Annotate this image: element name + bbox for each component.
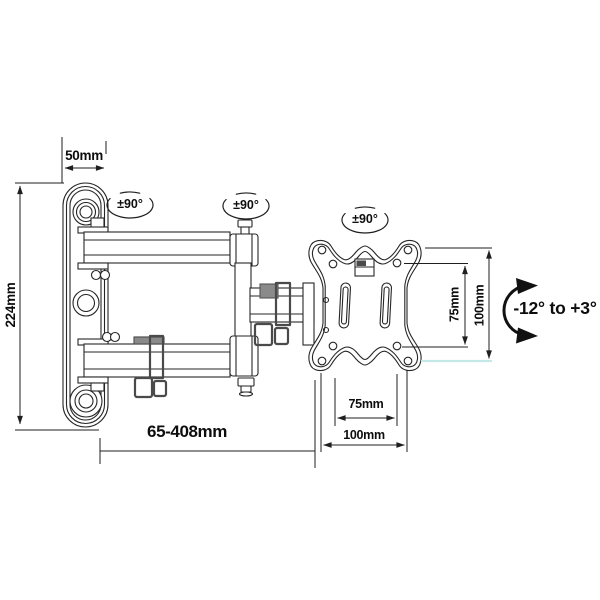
lower-hinge-block — [91, 383, 104, 391]
tilt-arrowhead-down — [516, 328, 538, 344]
left-clamp-hook-b — [154, 381, 166, 396]
label-wall-plate-width: 50mm — [58, 149, 110, 165]
upper-hinge-washer-a — [92, 271, 101, 280]
vesa-plate — [309, 240, 421, 370]
upper-arm — [78, 218, 258, 280]
right-clamp-hook-b — [275, 328, 288, 344]
label-wall-plate-height: 224mm — [4, 275, 20, 335]
upper-arm-bar — [84, 232, 230, 263]
vesa-locking-clip-tab — [357, 261, 367, 267]
lower-arm-flange-bottom — [78, 377, 108, 383]
elbow-link-column — [235, 263, 251, 338]
lower-nut-neck — [241, 386, 251, 392]
elbow-bolt-neck — [241, 227, 249, 234]
diagram-canvas: 50mm 224mm 65-408mm 75mm 100mm 75mm 100m… — [0, 0, 600, 600]
swivel-arc-1-top — [120, 192, 139, 193]
label-vesa-vertical-100: 100mm — [474, 278, 489, 334]
label-vesa-horizontal-100: 100mm — [336, 429, 392, 444]
upper-arm-flange-bottom — [78, 263, 108, 269]
label-vesa-horizontal-75: 75mm — [338, 398, 394, 413]
plate-center-hole-inner — [78, 295, 95, 312]
bottom-mount-bolt — [79, 394, 93, 408]
vesa-bracket-bar — [303, 283, 314, 345]
lower-knuckle — [230, 336, 258, 376]
vesa-bracket — [303, 283, 314, 345]
swivel-arc-2-top — [236, 193, 255, 194]
top-mount-bolt — [80, 206, 92, 218]
label-swivel-joint-3: ±90° — [342, 213, 388, 228]
left-clamp-hook-a — [135, 378, 152, 397]
upper-knuckle — [230, 234, 258, 266]
lower-arm-bar — [84, 344, 230, 377]
label-swivel-joint-2: ±90° — [223, 199, 269, 214]
tilt-arrowhead-up — [516, 278, 538, 294]
label-vesa-vertical-75: 75mm — [449, 277, 464, 333]
label-tilt-range: -12° to +3° — [510, 299, 600, 318]
elbow-link-column-bar — [235, 263, 251, 338]
upper-hinge-washer-b — [101, 271, 110, 280]
label-extension-range: 65-408mm — [128, 423, 246, 442]
elbow-bolt-head — [238, 220, 252, 227]
label-swivel-joint-1: ±90° — [107, 198, 153, 213]
swivel-arc-3-top — [355, 207, 374, 208]
lower-nut-washer — [240, 392, 253, 396]
lower-nut-head — [238, 378, 254, 386]
clamp-bolt-washer-b — [111, 333, 120, 342]
